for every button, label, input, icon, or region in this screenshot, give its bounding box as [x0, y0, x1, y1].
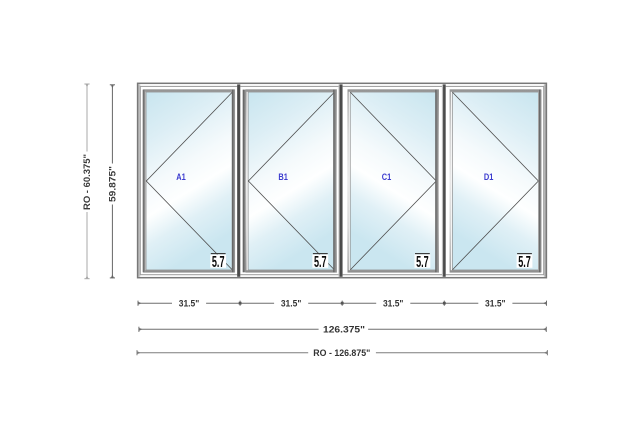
svg-text:5.7: 5.7: [518, 254, 531, 271]
svg-text:31.5": 31.5": [383, 299, 404, 310]
svg-text:126.375": 126.375": [323, 325, 365, 336]
svg-text:A1: A1: [176, 172, 186, 183]
svg-text:B1: B1: [278, 172, 288, 183]
svg-text:C1: C1: [382, 172, 392, 183]
svg-text:D1: D1: [484, 172, 494, 183]
svg-text:5.7: 5.7: [416, 254, 429, 271]
svg-text:31.5": 31.5": [179, 299, 200, 310]
svg-text:31.5": 31.5": [281, 299, 302, 310]
svg-text:RO - 126.875": RO - 126.875": [313, 348, 370, 359]
svg-text:59.875": 59.875": [107, 166, 118, 202]
svg-text:RO - 60.375": RO - 60.375": [82, 154, 93, 210]
svg-text:5.7: 5.7: [212, 254, 225, 271]
svg-text:5.7: 5.7: [314, 254, 327, 271]
svg-text:31.5": 31.5": [485, 299, 506, 310]
